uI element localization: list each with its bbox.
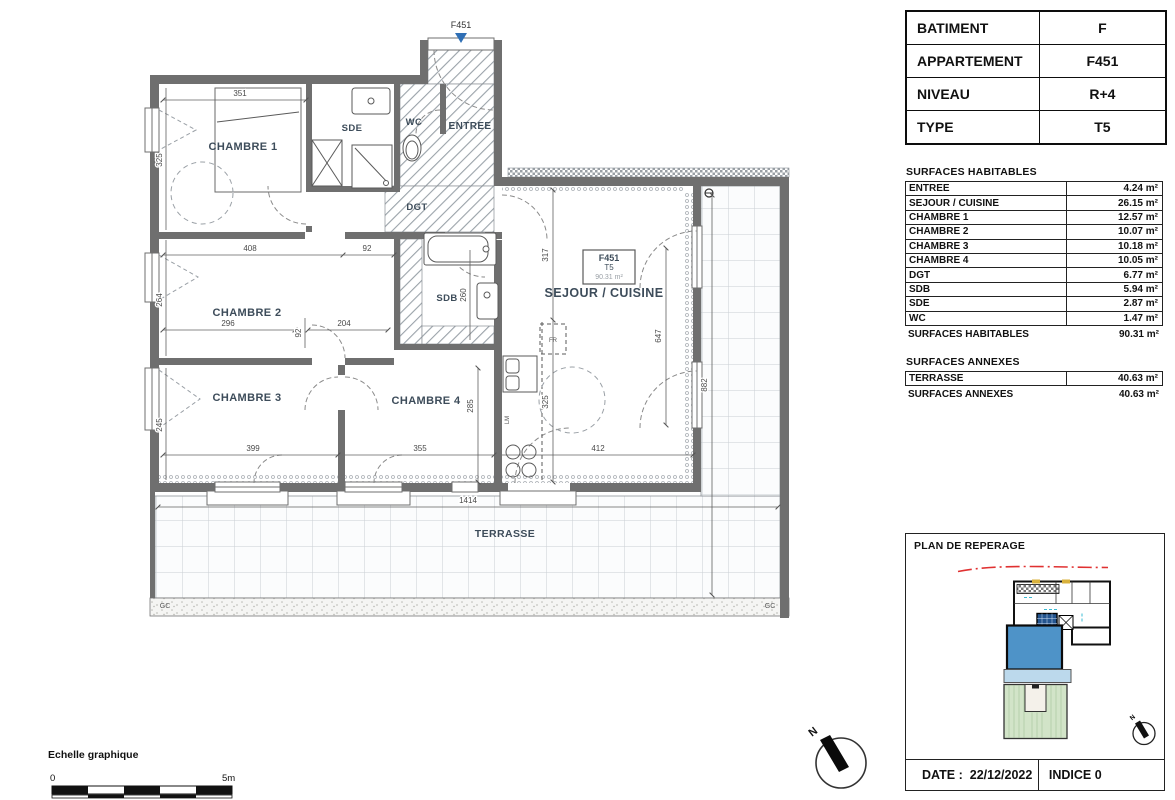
svg-text:351: 351 bbox=[233, 89, 247, 98]
svg-text:325: 325 bbox=[155, 153, 164, 167]
svg-text:355: 355 bbox=[413, 444, 427, 453]
svg-text:F451: F451 bbox=[451, 20, 472, 30]
room-wc: WC bbox=[406, 117, 423, 128]
sink bbox=[503, 356, 537, 392]
info-label: TYPE bbox=[907, 111, 1040, 143]
svg-text:0: 0 bbox=[50, 773, 55, 784]
annexes-total: SURFACES ANNEXES 40.63 m² bbox=[905, 386, 1163, 403]
info-label: APPARTEMENT bbox=[907, 45, 1040, 77]
table-row: APPARTEMENT F451 bbox=[907, 44, 1165, 77]
annexes-title: SURFACES ANNEXES bbox=[906, 356, 1163, 368]
svg-text:882: 882 bbox=[700, 378, 709, 392]
table-row: BATIMENT F bbox=[907, 12, 1165, 44]
svg-text:399: 399 bbox=[246, 444, 260, 453]
location-mini-map: N bbox=[906, 552, 1162, 759]
svg-text:N: N bbox=[1129, 713, 1137, 722]
svg-text:412: 412 bbox=[591, 444, 605, 453]
garden-area bbox=[1004, 685, 1067, 739]
svg-text:245: 245 bbox=[155, 418, 164, 432]
boundary-red-line bbox=[958, 567, 1108, 572]
surfaces-title: SURFACES HABITABLES bbox=[906, 166, 1163, 178]
surfaces-table: ENTREE4.24 m² SEJOUR / CUISINE26.15 m² C… bbox=[905, 181, 1163, 326]
fridge-label: FR bbox=[549, 338, 558, 344]
room-sdb: SDB bbox=[436, 293, 457, 304]
right-column: BATIMENT F APPARTEMENT F451 NIVEAU R+4 T… bbox=[903, 0, 1169, 800]
table-row: TYPE T5 bbox=[907, 110, 1165, 143]
page: 351 408 92 296 92 204 260 317 647 325 28… bbox=[0, 0, 1175, 800]
svg-text:296: 296 bbox=[221, 319, 235, 328]
svg-text:90.31 m²: 90.31 m² bbox=[595, 274, 623, 281]
hob bbox=[506, 445, 520, 459]
svg-text:260: 260 bbox=[459, 288, 468, 302]
info-label: NIVEAU bbox=[907, 78, 1040, 110]
highlighted-unit bbox=[1007, 626, 1062, 670]
table-row: SEJOUR / CUISINE26.15 m² bbox=[906, 195, 1162, 209]
info-value: T5 bbox=[1040, 111, 1165, 143]
location-plan-box: PLAN DE REPERAGE bbox=[905, 533, 1165, 791]
apartment-info-table: BATIMENT F APPARTEMENT F451 NIVEAU R+4 T… bbox=[905, 10, 1167, 145]
svg-text:N: N bbox=[806, 725, 820, 739]
room-chambre1: CHAMBRE 1 bbox=[209, 141, 278, 153]
room-sejour: SEJOUR / CUISINE bbox=[545, 286, 664, 300]
svg-text:92: 92 bbox=[294, 328, 303, 337]
table-row: CHAMBRE 210.07 m² bbox=[906, 224, 1162, 238]
svg-text:Echelle graphique: Echelle graphique bbox=[48, 749, 139, 761]
location-plan-title: PLAN DE REPERAGE bbox=[906, 534, 1164, 552]
table-row: CHAMBRE 410.05 m² bbox=[906, 253, 1162, 267]
date-value: 22/12/2022 bbox=[970, 768, 1033, 782]
surfaces-section: SURFACES HABITABLES ENTREE4.24 m² SEJOUR… bbox=[905, 166, 1163, 403]
svg-text:285: 285 bbox=[466, 399, 475, 413]
compass-needle-icon bbox=[820, 735, 849, 772]
svg-text:264: 264 bbox=[155, 293, 164, 307]
info-label: BATIMENT bbox=[907, 12, 1040, 44]
room-entree: ENTREE bbox=[449, 121, 492, 132]
unit-tag: F451 T5 90.31 m² bbox=[583, 250, 635, 284]
room-terrasse: TERRASSE bbox=[475, 528, 535, 540]
svg-text:1414: 1414 bbox=[459, 496, 477, 505]
north-compass: N bbox=[806, 725, 866, 788]
svg-text:325: 325 bbox=[541, 395, 550, 409]
svg-text:5m: 5m bbox=[222, 773, 235, 784]
floor-plan: 351 408 92 296 92 204 260 317 647 325 28… bbox=[0, 0, 900, 800]
bed bbox=[215, 88, 301, 192]
lm-label: LM bbox=[505, 416, 511, 424]
table-row: DGT6.77 m² bbox=[906, 267, 1162, 281]
room-sde: SDE bbox=[342, 123, 363, 134]
table-row: SDB5.94 m² bbox=[906, 282, 1162, 296]
table-row: CHAMBRE 310.18 m² bbox=[906, 239, 1162, 253]
info-value: F bbox=[1040, 12, 1165, 44]
table-row: WC1.47 m² bbox=[906, 311, 1162, 325]
info-value: R+4 bbox=[1040, 78, 1165, 110]
indice-cell: INDICE 0 bbox=[1039, 760, 1164, 790]
gc-label-right: GC bbox=[765, 603, 776, 610]
sdb-basin bbox=[477, 283, 498, 319]
scale-bar: Echelle graphique 0 5m bbox=[48, 749, 235, 798]
room-dgt: DGT bbox=[406, 202, 427, 213]
svg-text:204: 204 bbox=[337, 319, 351, 328]
annexes-table: TERRASSE40.63 m² bbox=[905, 371, 1163, 386]
table-row: TERRASSE40.63 m² bbox=[906, 372, 1162, 385]
unit-terrace-strip bbox=[1004, 670, 1071, 683]
svg-text:F451: F451 bbox=[599, 253, 620, 263]
plan-footer: DATE : 22/12/2022 INDICE 0 bbox=[906, 759, 1164, 790]
surfaces-total: SURFACES HABITABLES 90.31 m² bbox=[905, 326, 1163, 343]
room-chambre3: CHAMBRE 3 bbox=[213, 392, 282, 404]
date-cell: DATE : 22/12/2022 bbox=[906, 760, 1039, 790]
table-row: ENTREE4.24 m² bbox=[906, 182, 1162, 195]
svg-text:T5: T5 bbox=[604, 263, 614, 272]
svg-text:317: 317 bbox=[541, 248, 550, 262]
table-row: NIVEAU R+4 bbox=[907, 77, 1165, 110]
svg-text:408: 408 bbox=[243, 244, 257, 253]
gc-label-left: GC bbox=[160, 603, 171, 610]
chair-circle bbox=[171, 162, 233, 224]
table-row: CHAMBRE 112.57 m² bbox=[906, 210, 1162, 224]
svg-text:92: 92 bbox=[363, 244, 372, 253]
table-row: SDE2.87 m² bbox=[906, 296, 1162, 310]
date-label: DATE : bbox=[922, 768, 963, 782]
svg-text:647: 647 bbox=[654, 329, 663, 343]
room-chambre2: CHAMBRE 2 bbox=[213, 307, 282, 319]
mini-north-compass: N bbox=[1129, 713, 1155, 744]
info-value: F451 bbox=[1040, 45, 1165, 77]
room-chambre4: CHAMBRE 4 bbox=[392, 395, 461, 407]
